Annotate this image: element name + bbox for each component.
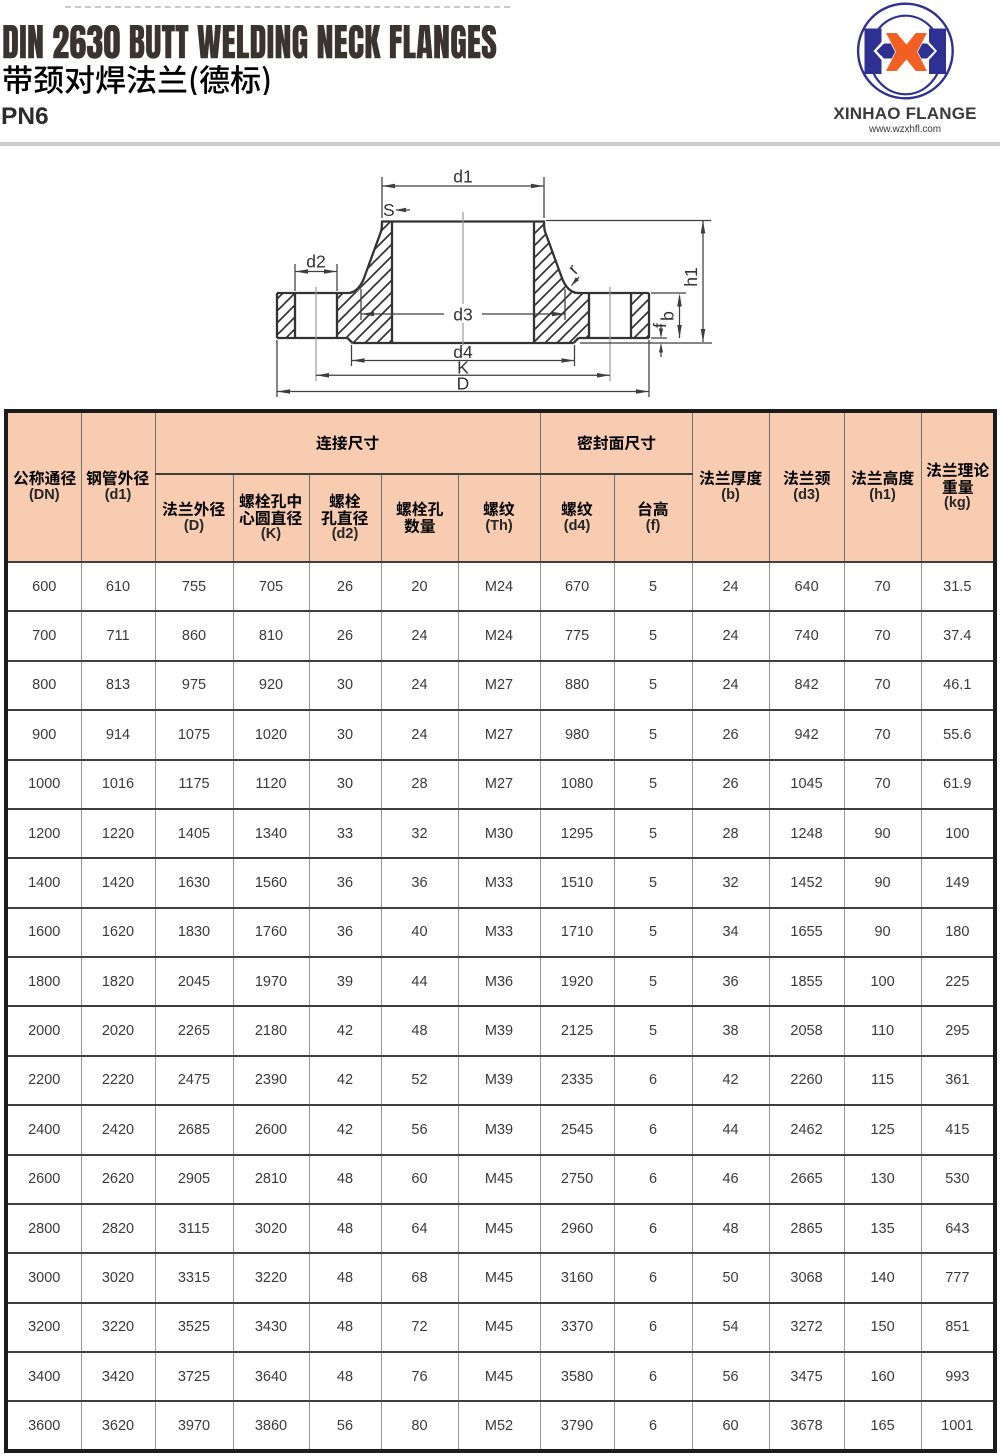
svg-text:d3: d3 [453, 305, 472, 325]
svg-text:D: D [457, 374, 470, 394]
svg-text:r: r [564, 260, 583, 278]
svg-text:d1: d1 [453, 167, 472, 187]
svg-text:b: b [658, 311, 678, 321]
svg-text:S: S [383, 200, 395, 220]
svg-text:f: f [650, 323, 670, 328]
svg-text:d2: d2 [306, 252, 325, 272]
svg-text:h1: h1 [681, 267, 701, 286]
